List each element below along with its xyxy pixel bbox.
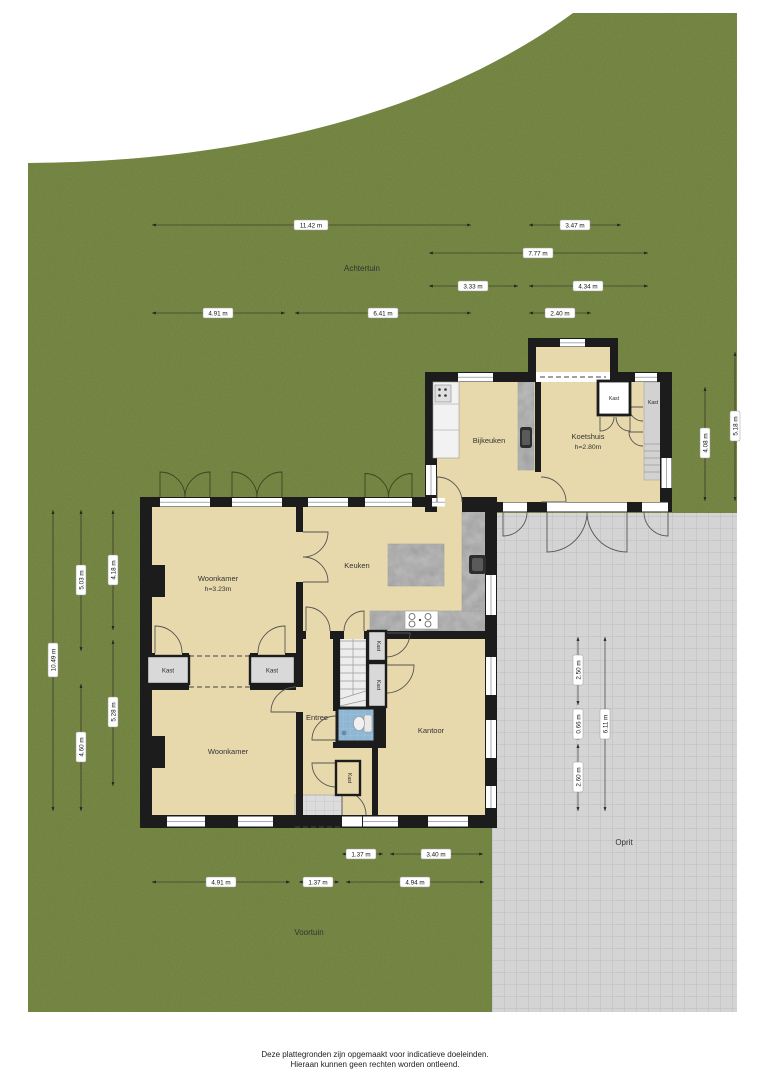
chimney-breast-1 [152,565,165,597]
dim-label: 4.18 m [110,560,117,579]
footer-disclaimer: Deze plattegronden zijn opgemaakt voor i… [261,1050,488,1069]
dim-label: 6.41 m [373,310,392,317]
closet-label: Kast [609,396,620,402]
closet-label: Kast [162,669,174,675]
staircase-koetshuis [644,382,662,480]
dim-label: 1.37 m [308,879,327,886]
dim-label: 3.47 m [565,222,584,229]
room-label-woonkamer1: Woonkamer [198,574,239,583]
scullery-counter-strip [518,382,534,470]
dim-label: 5.28 m [110,702,117,721]
floor-drain [342,731,347,736]
kitchen-island [388,544,444,586]
closet-label: Kast [375,641,381,652]
room-height-woonkamer1: h=3.23m [205,586,232,593]
toilet-room [337,708,375,742]
closet-label: Kast [375,680,381,691]
dim-label: 10.49 m [50,649,57,672]
closet-label: Kast [648,400,659,406]
disclaimer-line1: Deze plattegronden zijn opgemaakt voor i… [261,1050,488,1059]
dim-label: 3.33 m [463,283,482,290]
chimney-breast-2 [152,736,165,768]
dim-label: 2.60 m [575,767,582,786]
dim-label: 7.77 m [528,250,547,257]
closet-label: Kast [346,773,352,784]
dim-label: 4.34 m [578,283,597,290]
scullery-appliance [435,385,451,402]
front-garden-label: Voortuin [294,928,323,937]
dim-label: 11.42 m [300,222,322,229]
toilet-tank [364,715,372,732]
staircase-main [340,633,366,707]
driveway-paving [492,513,737,1012]
back-garden-label: Achtertuin [344,264,380,273]
dim-label: 5.18 m [732,416,739,435]
floorplan-page: Woonkamer h=3.23m Keuken Bijkeuken Koets… [0,0,764,1080]
room-label-woonkamer2: Woonkamer [208,747,249,756]
dim-label: 4.94 m [405,879,424,886]
dim-label: 5.03 m [78,570,85,589]
room-label-bijkeuken: Bijkeuken [473,436,506,445]
room-label-keuken: Keuken [344,561,369,570]
toilet-bowl [354,717,365,731]
disclaimer-line2: Hieraan kunnen geen rechten worden ontle… [290,1060,459,1069]
dim-label: 4.91 m [208,310,227,317]
dim-label: 2.50 m [575,660,582,679]
room-label-kantoor: Kantoor [418,726,445,735]
dim-label: 4.60 m [78,737,85,756]
room-height-koetshuis: h=2.80m [575,444,602,451]
dim-label: 4.91 m [211,879,230,886]
dim-label: 3.40 m [426,851,445,858]
room-label-koetshuis: Koetshuis [572,432,605,441]
driveway-label: Oprit [615,838,633,847]
dim-label: 0.66 m [575,714,582,733]
floorplan-canvas: Woonkamer h=3.23m Keuken Bijkeuken Koets… [0,0,764,1080]
closet-label: Kast [266,669,278,675]
dim-label: 6.11 m [602,715,609,734]
dim-label: 2.40 m [550,310,569,317]
dim-label: 1.37 m [351,851,370,858]
room-label-entree: Entree [306,713,328,722]
driveway [492,513,737,1012]
dim-label: 4.08 m [702,433,709,452]
